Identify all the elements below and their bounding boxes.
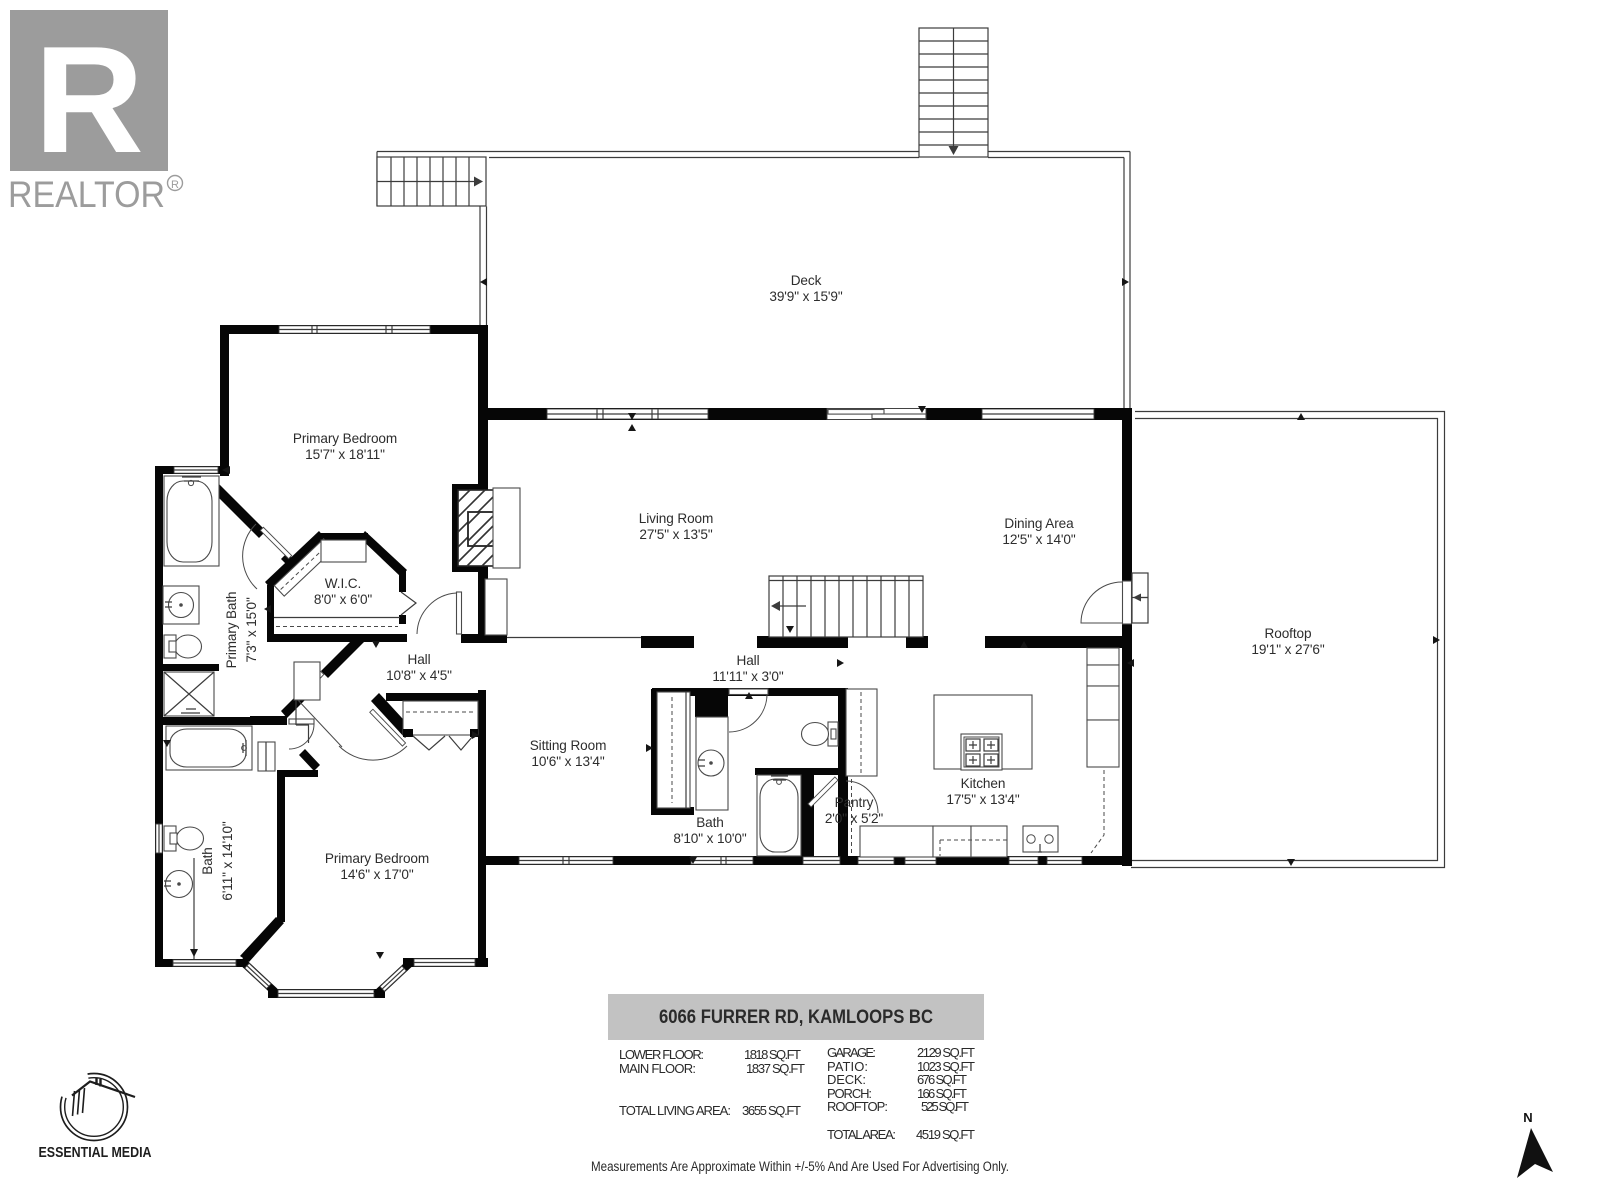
svg-text:Dining Area: Dining Area (1004, 516, 1074, 531)
svg-text:39'9" x 15'9": 39'9" x 15'9" (769, 289, 843, 304)
svg-text:Hall: Hall (736, 653, 759, 668)
svg-text:27'5" x 13'5": 27'5" x 13'5" (639, 527, 713, 542)
svg-text:6066 FURRER RD, KAMLOOPS BC: 6066 FURRER RD, KAMLOOPS BC (659, 1007, 933, 1028)
svg-text:R: R (171, 179, 179, 191)
svg-text:2129 SQ.FT: 2129 SQ.FT (917, 1045, 975, 1060)
svg-text:REALTOR: REALTOR (8, 174, 165, 215)
svg-text:Primary Bedroom: Primary Bedroom (325, 851, 429, 866)
svg-text:ROOFTOP:: ROOFTOP: (827, 1099, 888, 1114)
svg-text:1837 SQ.FT: 1837 SQ.FT (746, 1061, 805, 1076)
svg-text:N: N (1523, 1110, 1532, 1125)
svg-text:11'11" x 3'0": 11'11" x 3'0" (712, 669, 784, 684)
svg-text:TOTAL AREA:: TOTAL AREA: (827, 1127, 896, 1142)
svg-text:LOWER FLOOR:: LOWER FLOOR: (619, 1047, 704, 1062)
svg-text:8'10" x 10'0": 8'10" x 10'0" (673, 831, 747, 846)
svg-text:3655 SQ.FT: 3655 SQ.FT (742, 1103, 801, 1118)
svg-text:Kitchen: Kitchen (961, 776, 1006, 791)
svg-text:17'5" x 13'4": 17'5" x 13'4" (946, 792, 1020, 807)
svg-text:525 SQ.FT: 525 SQ.FT (921, 1099, 969, 1114)
svg-text:10'6" x 13'4": 10'6" x 13'4" (531, 754, 605, 769)
svg-text:1818 SQ.FT: 1818 SQ.FT (744, 1047, 801, 1062)
svg-text:Pantry: Pantry (835, 795, 874, 810)
svg-text:15'7" x 18'11": 15'7" x 18'11" (305, 447, 385, 462)
svg-text:Sitting Room: Sitting Room (530, 738, 607, 753)
svg-text:2'0" x 5'2": 2'0" x 5'2" (825, 811, 884, 826)
svg-text:ESSENTIAL MEDIA: ESSENTIAL MEDIA (39, 1144, 152, 1161)
svg-text:Hall: Hall (407, 652, 430, 667)
svg-text:Rooftop: Rooftop (1265, 626, 1312, 641)
svg-text:8'0" x 6'0": 8'0" x 6'0" (314, 592, 373, 607)
svg-text:14'6" x 17'0": 14'6" x 17'0" (340, 867, 414, 882)
svg-text:TOTAL LIVING AREA:: TOTAL LIVING AREA: (619, 1103, 731, 1118)
svg-text:GARAGE:: GARAGE: (827, 1045, 876, 1060)
svg-text:Measurements Are Approximate W: Measurements Are Approximate Within +/-5… (591, 1159, 1009, 1174)
svg-text:Bath: Bath (696, 815, 724, 830)
svg-text:19'1" x 27'6": 19'1" x 27'6" (1251, 642, 1325, 657)
svg-text:7'3" x 15'0": 7'3" x 15'0" (244, 597, 259, 663)
svg-text:Living Room: Living Room (639, 511, 713, 526)
svg-text:4519 SQ.FT: 4519 SQ.FT (916, 1127, 975, 1142)
svg-text:Primary Bedroom: Primary Bedroom (293, 431, 397, 446)
svg-text:676 SQ.FT: 676 SQ.FT (917, 1072, 967, 1087)
svg-text:Bath: Bath (200, 847, 215, 874)
svg-text:MAIN FLOOR:: MAIN FLOOR: (619, 1061, 696, 1076)
svg-text:R: R (34, 15, 144, 185)
svg-text:Primary Bath: Primary Bath (224, 592, 239, 669)
svg-text:Deck: Deck (791, 273, 822, 288)
svg-text:6'11" x 14'10": 6'11" x 14'10" (220, 821, 235, 900)
svg-text:10'8" x 4'5": 10'8" x 4'5" (386, 668, 452, 683)
svg-text:12'5" x 14'0": 12'5" x 14'0" (1002, 532, 1076, 547)
svg-text:W.I.C.: W.I.C. (325, 576, 361, 591)
svg-text:DECK:: DECK: (827, 1072, 866, 1087)
